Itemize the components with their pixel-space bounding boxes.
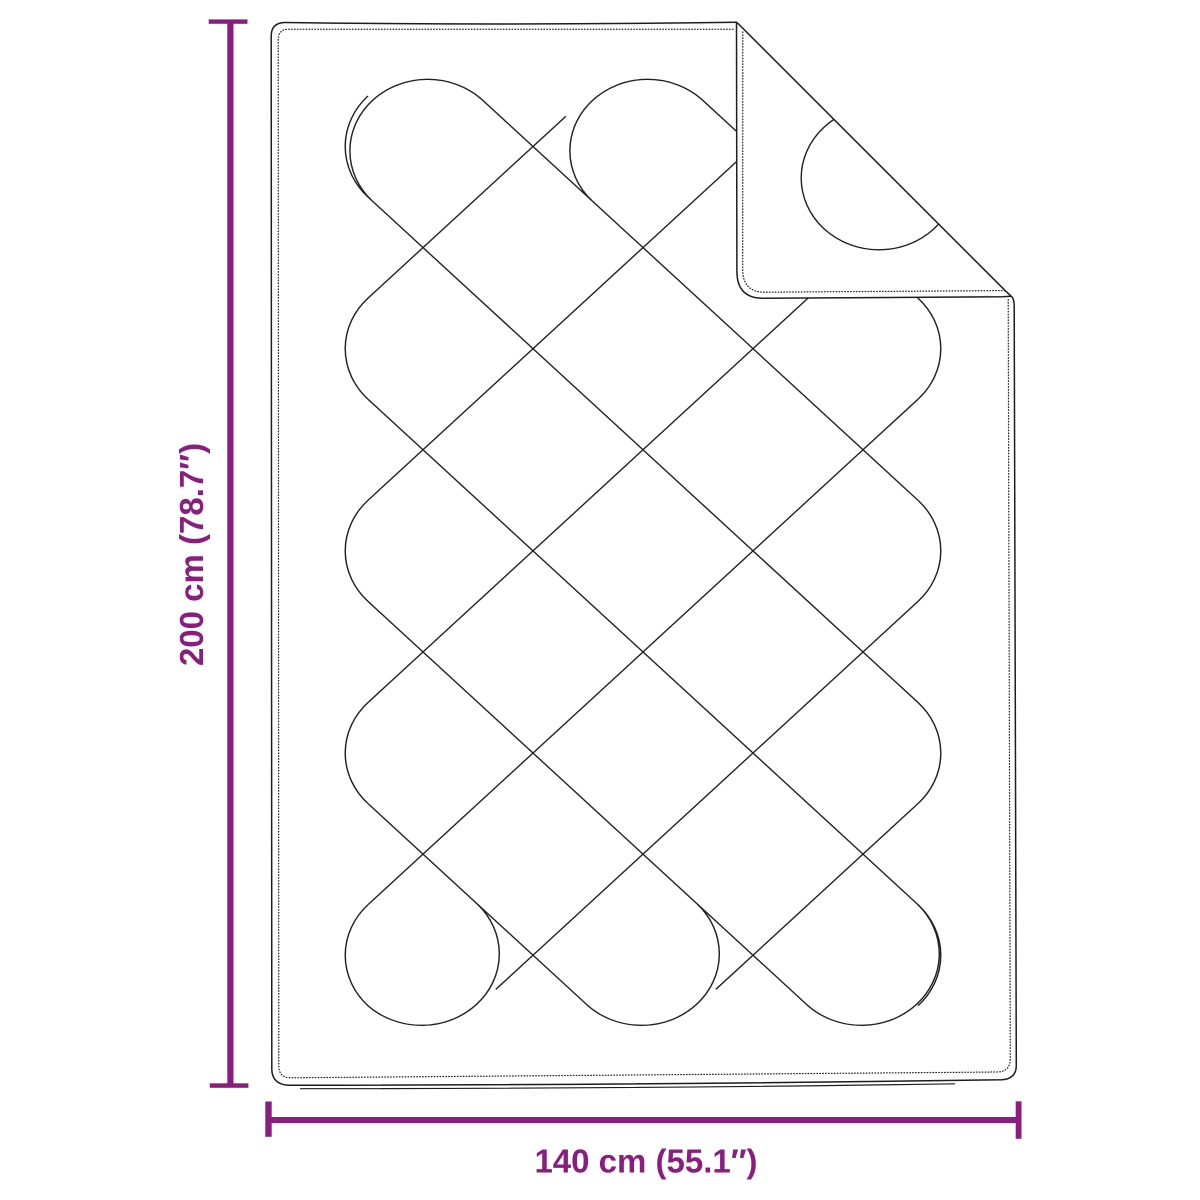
svg-text:200 cm (78.7″): 200 cm (78.7″) [173, 443, 210, 666]
svg-text:140 cm (55.1″): 140 cm (55.1″) [534, 1143, 757, 1180]
